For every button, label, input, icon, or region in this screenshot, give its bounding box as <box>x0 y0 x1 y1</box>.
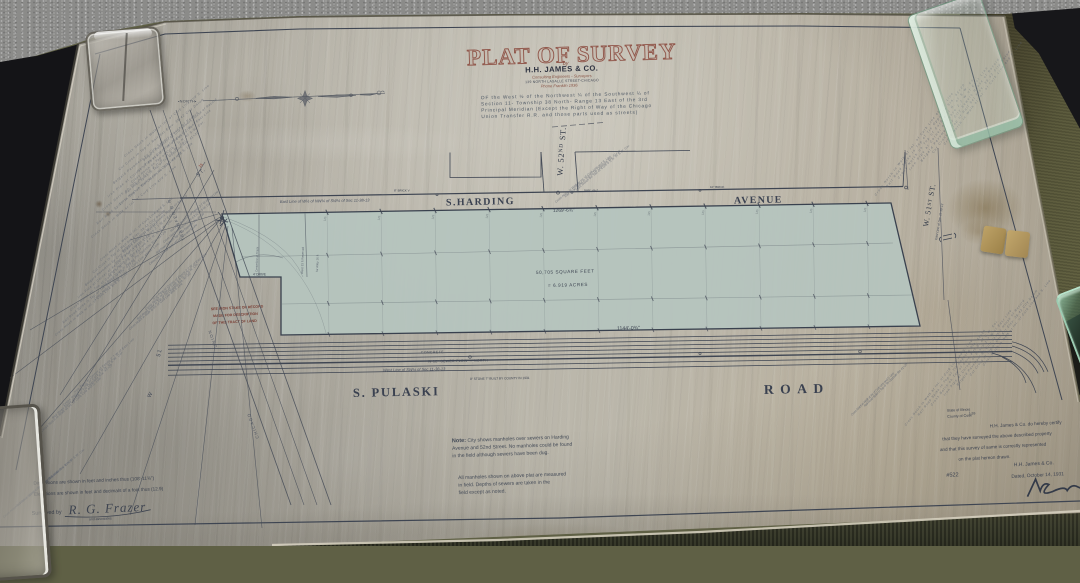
svg-text:field except as noted.: field except as noted. <box>459 489 506 497</box>
svg-text:Phone Franklin 1936: Phone Franklin 1936 <box>541 83 579 89</box>
svg-text:R. G. Frazer: R. G. Frazer <box>67 499 146 517</box>
svg-text:in the field although sewers h: in the field although sewers have been d… <box>452 450 549 459</box>
svg-text:in field. Depths of sewers are: in field. Depths of sewers are taken in … <box>458 479 550 488</box>
svg-text:} ss: } ss <box>969 410 976 415</box>
svg-text:8" STONE 7" BUILT BY COU: 8" STONE 7" BUILT BY COUNTY IN 1931 <box>470 376 530 381</box>
svg-text:W 12" SEWER FLOW → NORTH: W 12" SEWER FLOW → NORTH <box>428 358 488 363</box>
svg-text:Elevations are shown in feet a: Elevations are shown in feet and decimal… <box>34 486 164 497</box>
svg-text:W: W <box>147 391 155 399</box>
svg-text:H.H. James & Co.: H.H. James & Co. <box>1014 460 1054 468</box>
svg-text:Cross Notch in Walk at Int. of: Cross Notch in Walk at Int. of Curb Line… <box>128 282 184 331</box>
svg-text:S.HARDING: S.HARDING <box>446 196 515 208</box>
svg-text:that they have surveyed the ab: that they have surveyed the above descri… <box>942 431 1052 442</box>
svg-text:East Line of W½ of NW¼ of SW¼: East Line of W½ of NW¼ of SW¼ of Sec 11-… <box>280 197 370 204</box>
svg-text:H.H. James & Co. do hereby cer: H.H. James & Co. do hereby certify <box>990 420 1063 429</box>
svg-text:Rail Road Spike in Top of Tie: Rail Road Spike in Top of Tie Opposite S… <box>136 272 192 321</box>
svg-text:4' DRIVE: 4' DRIVE <box>253 273 266 277</box>
svg-text:Iron Pipe at Corner of Fence 2: Iron Pipe at Corner of Fence 2.7 W of Ea… <box>152 252 208 301</box>
svg-text:= 6.919 ACRES: = 6.919 ACRES <box>548 282 588 288</box>
svg-text:for Alley 16 ft: for Alley 16 ft <box>315 254 320 272</box>
svg-text:CONCRETE: CONCRETE <box>421 350 444 354</box>
svg-text:51: 51 <box>156 348 164 357</box>
svg-text:1144'-0¾": 1144'-0¾" <box>617 325 640 332</box>
svg-text:1269'-6¾": 1269'-6¾" <box>553 207 575 214</box>
svg-text:Cross Notch on Top of Curb 4 f: Cross Notch on Top of Curb 4 ft N. of S.… <box>573 143 631 192</box>
svg-text:Cross Notch on Top of Curb 4 f: Cross Notch on Top of Curb 4 ft N. of S.… <box>144 262 200 311</box>
svg-text:MADE FOR DESCRIPTION: MADE FOR DESCRIPTION <box>213 312 258 318</box>
svg-text:and associates: and associates <box>89 516 112 521</box>
svg-text:East Line of Sec 11-38-13: East Line of Sec 11-38-13 <box>934 203 944 240</box>
svg-text:Rail Road Spike in Top of Tie: Rail Road Spike in Top of Tie Opposite S… <box>51 363 113 420</box>
svg-text:S. PULASKI: S. PULASKI <box>353 384 440 400</box>
svg-text:on the plat hereon drawn.: on the plat hereon drawn. <box>958 454 1010 462</box>
svg-text:ROAD: ROAD <box>764 381 830 397</box>
svg-text:Dated, October 14, 1931: Dated, October 14, 1931 <box>1011 471 1064 480</box>
svg-text:W. 51ST ST.: W. 51ST ST. <box>921 183 937 227</box>
svg-text:All manholes shown on above pl: All manholes shown on above plat are mea… <box>458 471 566 481</box>
svg-text:10" BRICK: 10" BRICK <box>710 185 724 189</box>
svg-text:West Line of SW¼ of Sec 11-38-: West Line of SW¼ of Sec 11-38-13 <box>383 366 446 372</box>
svg-text:OF THIS TRACT OF LAND: OF THIS TRACT OF LAND <box>212 319 257 325</box>
svg-text:Cross Notch in Walk at Int. of: Cross Notch in Walk at Int. of Curb Line… <box>40 376 102 433</box>
svg-text:Cross Notch on Top of Curb 4 f: Cross Notch on Top of Curb 4 ft N. of S.… <box>62 350 124 407</box>
svg-text:and that this survey of same i: and that this survey of same is correctl… <box>940 442 1047 453</box>
svg-text:#522: #522 <box>946 472 959 479</box>
svg-text:W. 52ND ST.: W. 52ND ST. <box>556 127 568 177</box>
svg-text:8" BRICK V: 8" BRICK V <box>394 189 410 193</box>
svg-text:Rail Road Spike in Top of Tie: Rail Road Spike in Top of Tie Opposite S… <box>863 362 908 407</box>
svg-text:Rail Road Spike in Top of Tie: Rail Road Spike in Top of Tie Opposite S… <box>917 329 987 417</box>
svg-text:Iron Pipe at Corner of Fence 2: Iron Pipe at Corner of Fence 2.7 W of Ea… <box>73 337 135 394</box>
svg-text:State of Illinois: State of Illinois <box>947 407 971 412</box>
svg-text:595'-4¾": 595'-4¾" <box>584 189 599 193</box>
